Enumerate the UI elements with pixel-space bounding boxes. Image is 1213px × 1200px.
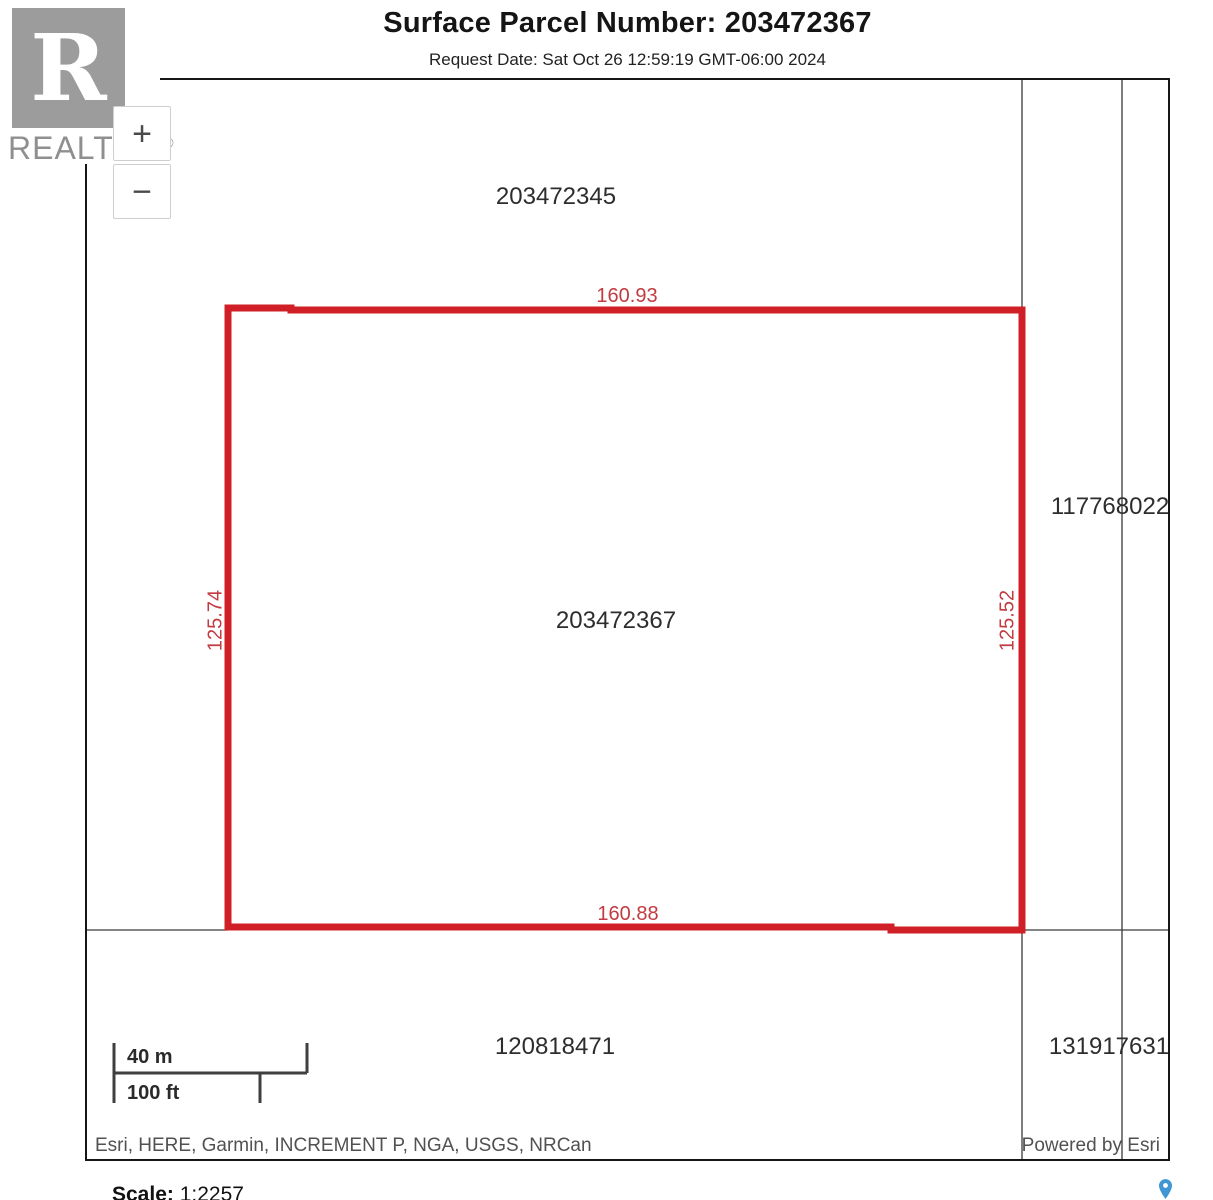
location-pin-icon [1157, 1178, 1174, 1200]
scale-imperial-label: 100 ft [127, 1082, 179, 1105]
dimension-top: 160.93 [557, 285, 697, 308]
realtor-logo-mark: R [12, 8, 125, 128]
request-date: Request Date: Sat Oct 26 12:59:19 GMT-06… [85, 50, 1170, 70]
zoom-out-button[interactable]: − [113, 164, 171, 219]
parcel-label-south: 120818471 [455, 1033, 655, 1061]
realtor-r-glyph: R [30, 22, 106, 114]
scale-label: Scale: [112, 1183, 174, 1200]
plus-icon: + [132, 117, 152, 151]
dimension-bottom: 160.88 [558, 903, 698, 926]
map-attribution: Esri, HERE, Garmin, INCREMENT P, NGA, US… [95, 1135, 592, 1157]
powered-by-esri: Powered by Esri [1022, 1135, 1160, 1157]
parcel-label-east: 117768022 [1010, 493, 1210, 521]
scale-metric-label: 40 m [127, 1046, 173, 1069]
footer-scale: Scale: 1:2257 [112, 1183, 244, 1200]
scale-value: 1:2257 [180, 1183, 244, 1200]
parcel-label-southeast: 131917631 [1009, 1033, 1209, 1061]
minus-icon: − [132, 175, 152, 209]
page-title: Surface Parcel Number: 203472367 [85, 7, 1170, 40]
parcel-label-north: 203472345 [456, 183, 656, 211]
dimension-left: 125.74 [205, 551, 228, 691]
parcel-label-subject: 203472367 [516, 607, 716, 635]
dimension-right: 125.52 [997, 551, 1020, 691]
parcel-map-page: Surface Parcel Number: 203472367 Request… [0, 0, 1213, 1200]
map-zoom-controls: + − [113, 106, 171, 222]
zoom-in-button[interactable]: + [113, 106, 171, 161]
